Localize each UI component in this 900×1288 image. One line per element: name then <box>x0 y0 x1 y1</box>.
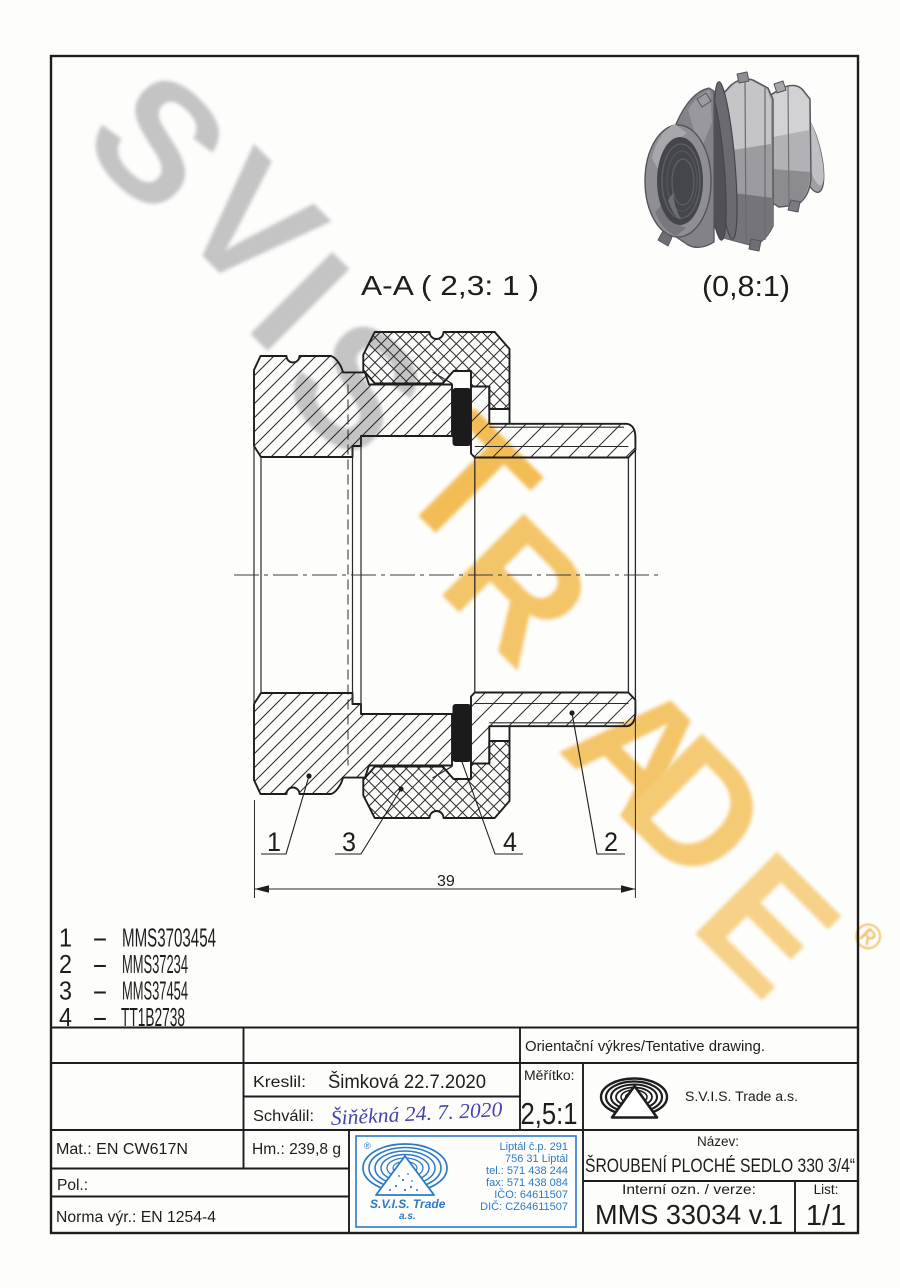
svg-text:MMS37234: MMS37234 <box>122 951 188 979</box>
svg-text:S.V.I.S. Trade a.s.: S.V.I.S. Trade a.s. <box>685 1089 798 1104</box>
svg-text:fax: 571 438 084: fax: 571 438 084 <box>486 1177 568 1189</box>
svg-text:2,5:1: 2,5:1 <box>521 1096 578 1131</box>
svg-text:DIČ: CZ64611507: DIČ: CZ64611507 <box>480 1200 568 1213</box>
svg-text:Název:: Název: <box>697 1134 739 1149</box>
svg-text:3: 3 <box>59 978 72 1006</box>
svg-text:Hm.: 239,8 g: Hm.: 239,8 g <box>252 1141 341 1158</box>
svg-text:(0,8:1): (0,8:1) <box>702 271 790 303</box>
svg-text:®: ® <box>364 1141 371 1151</box>
svg-text:tel.: 571 438 244: tel.: 571 438 244 <box>486 1165 568 1177</box>
svg-text:List:: List: <box>814 1182 839 1197</box>
svg-text:3: 3 <box>342 827 356 857</box>
svg-text:4: 4 <box>503 827 517 857</box>
svg-text:39: 39 <box>437 873 455 890</box>
svg-text:MMS 33034 v.1: MMS 33034 v.1 <box>595 1199 783 1230</box>
svg-text:Liptál č.p. 291: Liptál č.p. 291 <box>500 1141 569 1153</box>
svg-text:756 31 Liptál: 756 31 Liptál <box>505 1153 568 1165</box>
svg-text:Interní ozn. / verze:: Interní ozn. / verze: <box>622 1182 756 1197</box>
svg-text:Šiňěkná 24. 7. 2020: Šiňěkná 24. 7. 2020 <box>330 1097 504 1130</box>
svg-text:Šimková 22.7.2020: Šimková 22.7.2020 <box>328 1071 486 1093</box>
svg-text:Měřítko:: Měřítko: <box>524 1067 575 1083</box>
svg-text:A-A ( 2,3: 1 ): A-A ( 2,3: 1 ) <box>361 270 539 301</box>
svg-text:-: - <box>92 925 108 953</box>
svg-text:Norma výr.: EN 1254-4: Norma výr.: EN 1254-4 <box>56 1209 216 1226</box>
svg-text:Orientační výkres/Tentative dr: Orientační výkres/Tentative drawing. <box>525 1038 765 1055</box>
svg-text:-: - <box>92 978 108 1006</box>
svg-text:Schválil:: Schválil: <box>253 1108 314 1125</box>
svg-text:a.s.: a.s. <box>399 1211 416 1222</box>
svg-text:2: 2 <box>59 951 72 979</box>
svg-text:2: 2 <box>604 827 618 857</box>
svg-text:Kreslil:: Kreslil: <box>253 1074 306 1091</box>
svg-text:1: 1 <box>59 925 72 953</box>
svg-text:IČO: 64611507: IČO: 64611507 <box>494 1188 568 1201</box>
svg-text:1/1: 1/1 <box>806 1200 846 1232</box>
svg-text:Mat.: EN CW617N: Mat.: EN CW617N <box>56 1141 188 1158</box>
svg-text:ŠROUBENÍ PLOCHÉ SEDLO 330 3/4“: ŠROUBENÍ PLOCHÉ SEDLO 330 3/4“ <box>585 1155 855 1177</box>
svg-text:1: 1 <box>267 827 281 857</box>
svg-text:MMS37454: MMS37454 <box>122 978 188 1006</box>
svg-text:S.V.I.S. Trade: S.V.I.S. Trade <box>370 1197 446 1211</box>
svg-text:Pol.:: Pol.: <box>57 1177 88 1194</box>
svg-text:-: - <box>92 951 108 979</box>
svg-text:MMS3703454: MMS3703454 <box>122 925 216 953</box>
